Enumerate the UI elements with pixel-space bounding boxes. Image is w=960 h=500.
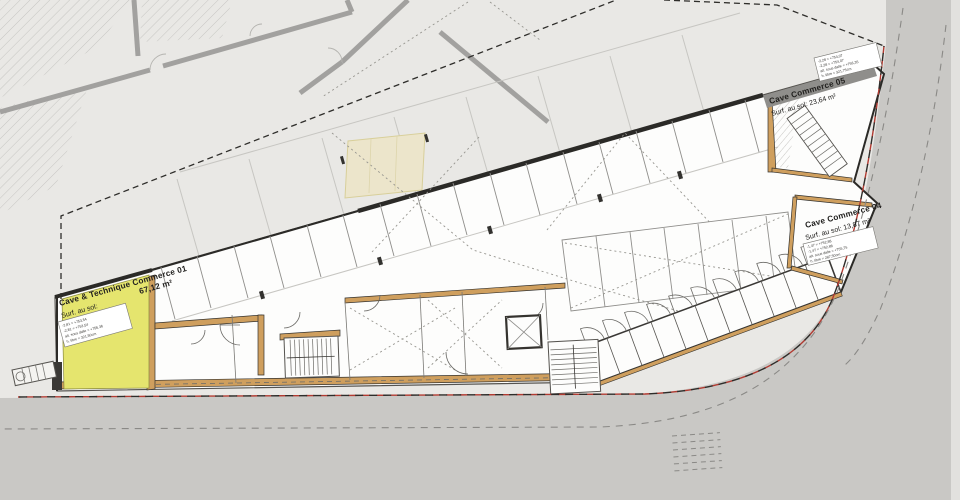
ramp-zone (345, 133, 425, 198)
floor-plan: Cave & Technique Commerce 01 67,12 m² Su… (0, 0, 960, 500)
street-edge-strip (951, 0, 960, 500)
staircase-secondary (548, 339, 601, 394)
staircase-main (284, 336, 339, 378)
elevator-shaft (506, 315, 542, 349)
